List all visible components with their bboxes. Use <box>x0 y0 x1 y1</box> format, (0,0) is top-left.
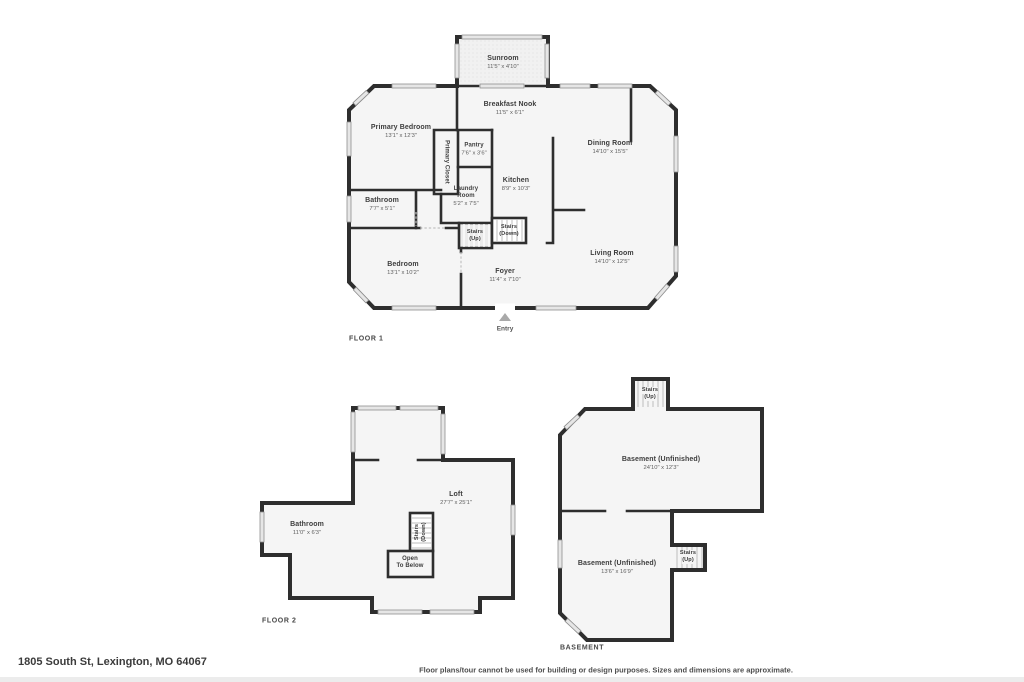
room-label-bathroom-f2: Bathroom 11'0" x 6'3" <box>290 521 324 537</box>
basement-title: BASEMENT <box>560 645 604 652</box>
room-label-breakfast-nook: Breakfast Nook 11'5" x 6'1" <box>484 101 537 117</box>
basement-outline <box>560 379 762 640</box>
room-label-stairs-up-basement-top: Stairs (Up) <box>642 387 658 401</box>
room-label-foyer: Foyer 11'4" x 7'10" <box>489 268 520 284</box>
room-label-basement-upper: Basement (Unfinished) 24'10" x 12'3" <box>622 456 700 472</box>
room-label-primary-bedroom: Primary Bedroom 13'1" x 12'3" <box>371 124 431 140</box>
basement-plan <box>558 379 762 640</box>
room-label-laundry-room: Laundry Room 5'2" x 7'5" <box>453 186 478 208</box>
room-label-bathroom: Bathroom 7'7" x 5'1" <box>365 197 399 213</box>
room-label-kitchen: Kitchen 8'9" x 10'3" <box>502 177 531 193</box>
floor1-title: FLOOR 1 <box>349 336 384 343</box>
entry-label: Entry <box>497 326 514 333</box>
room-label-primary-closet: Primary Closet <box>442 140 449 184</box>
entry-opening <box>495 304 515 313</box>
floor2-title: FLOOR 2 <box>262 618 297 625</box>
floor2-outline <box>262 408 513 612</box>
room-label-sunroom: Sunroom 11'5" x 4'10" <box>487 55 518 71</box>
disclaimer-text: Floor plans/tour cannot be used for buil… <box>419 666 793 675</box>
room-label-stairs-up-basement-right: Stairs (Up) <box>680 550 696 564</box>
room-label-stairs-up: Stairs (Up) <box>467 229 483 243</box>
room-label-open-to-below: Open To Below <box>396 556 423 570</box>
room-label-living-room: Living Room 14'10" x 12'5" <box>590 250 634 266</box>
bottom-divider <box>0 677 1024 682</box>
room-label-loft: Loft 27'7" x 25'1" <box>440 491 472 507</box>
room-label-stairs-down: Stairs (Down) <box>499 224 519 238</box>
floor2-plan <box>260 406 515 614</box>
room-label-bedroom: Bedroom 13'1" x 10'2" <box>387 261 419 277</box>
property-address: 1805 South St, Lexington, MO 64067 <box>18 656 207 668</box>
room-label-basement-lower: Basement (Unfinished) 13'6" x 16'9" <box>578 560 656 576</box>
floorplan-page: Sunroom 11'5" x 4'10" Breakfast Nook 11'… <box>0 0 1024 682</box>
entry-arrow-icon <box>499 313 511 321</box>
room-label-pantry: Pantry 7'6" x 3'6" <box>461 143 486 158</box>
room-label-dining-room: Dining Room 14'10" x 15'5" <box>588 140 633 156</box>
room-label-stairs-down-f2: Stairs (Down) <box>414 522 428 542</box>
